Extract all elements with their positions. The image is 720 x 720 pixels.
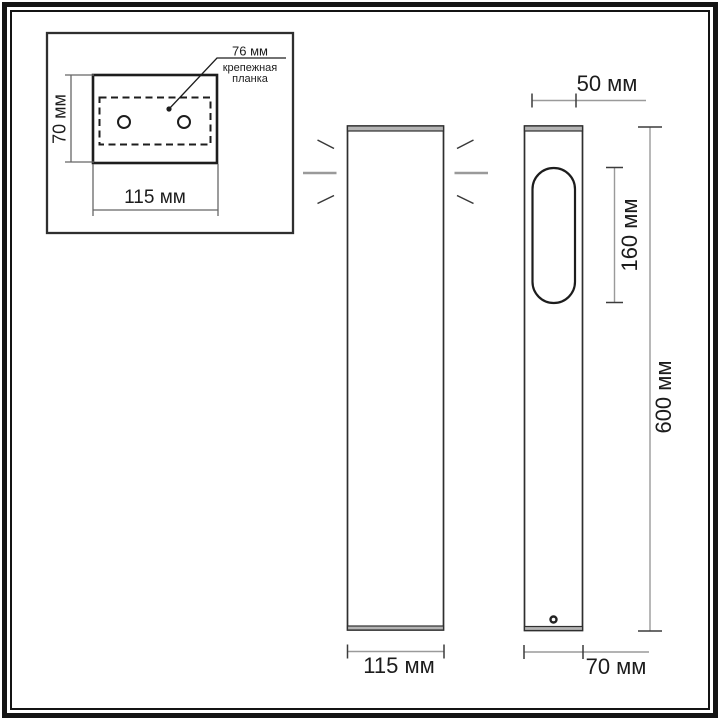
light-window xyxy=(533,168,576,303)
mounting-plate-outline xyxy=(93,75,217,163)
light-ray-icon xyxy=(318,140,335,149)
inset-plate-height-label: 70 мм xyxy=(50,94,71,144)
total-height-label: 600 мм xyxy=(651,360,677,433)
front-body xyxy=(348,126,444,630)
drawing-linework xyxy=(0,0,720,720)
side-base xyxy=(525,627,583,631)
window-height-label: 160 мм xyxy=(617,198,643,271)
side-view xyxy=(525,126,583,631)
light-rays-left xyxy=(303,140,337,204)
side-top-cap xyxy=(525,126,583,131)
mounting-plate-label: крепежная планка xyxy=(208,63,292,85)
light-ray-icon xyxy=(318,196,335,204)
front-view xyxy=(303,126,488,630)
inset-plate-width-label: 115 мм xyxy=(124,187,186,209)
light-rays-right xyxy=(455,140,489,204)
dimension-drawing: 76 мм крепежная планка 70 мм 115 мм 50 м… xyxy=(0,0,720,720)
mounting-hole-right xyxy=(178,116,190,128)
front-width-label: 115 мм xyxy=(363,653,434,679)
screw-icon xyxy=(551,617,557,623)
light-ray-icon xyxy=(457,196,474,204)
side-depth-label: 70 мм xyxy=(586,654,647,680)
front-top-cap xyxy=(348,126,444,131)
mounting-hole-left xyxy=(118,116,130,128)
side-top-depth-label: 50 мм xyxy=(577,71,638,97)
inset-hole-spacing-label: 76 мм xyxy=(232,44,268,59)
front-base xyxy=(348,626,444,630)
light-ray-icon xyxy=(457,140,474,149)
